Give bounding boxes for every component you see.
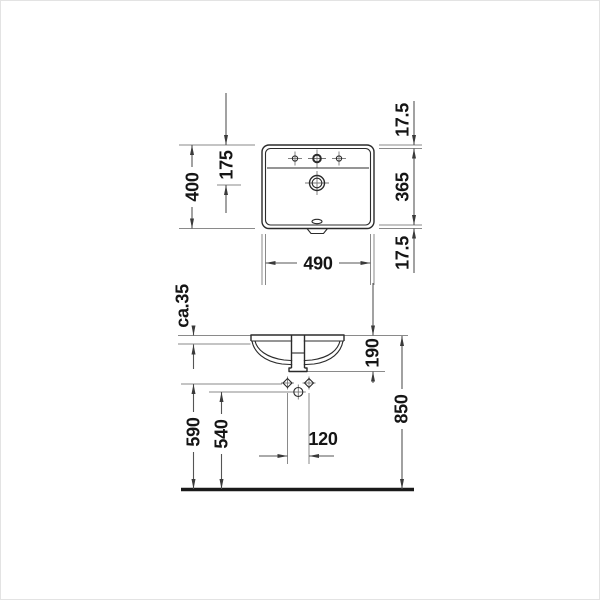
fixing-hole-left-icon [281,377,294,390]
tap-hole-right-icon [332,152,346,166]
top-view-dimensions: 400 175 17.5 365 17.5 490 [182,93,414,273]
top-view: 400 175 17.5 365 17.5 490 [179,93,422,285]
dim-outlet-depth-label: 190 [362,338,382,367]
supply-connection-icon [291,385,306,400]
drain-pipe [289,336,307,372]
dim-fixing-height-label: 590 [183,417,203,446]
tap-hole-left-icon [288,152,302,166]
drain-plan-icon [305,171,329,195]
fixing-hole-right-icon [303,377,316,390]
tap-hole-markers [288,150,346,168]
basin-front-profile [251,335,344,372]
overflow-slot [312,219,322,223]
overflow-notch [307,229,328,234]
washbasin-drawing: 400 175 17.5 365 17.5 490 [1,1,600,600]
dim-rim-height-label: 850 [391,394,411,423]
dim-supply-height-label: 540 [211,419,231,448]
dim-rim-front-label: 17.5 [392,236,412,270]
dim-width-label: 490 [303,253,332,273]
tap-hole-center-icon [308,150,326,168]
technical-drawing-canvas: 400 175 17.5 365 17.5 490 [0,0,600,600]
dim-depth-label: 400 [182,172,202,201]
side-view: ca.35 190 850 590 540 120 [172,283,414,490]
side-view-dimensions: ca.35 190 850 590 540 120 [172,283,411,489]
dim-drain-offset-label: 175 [216,150,236,179]
dim-supply-spacing-label: 120 [308,429,337,449]
dim-basin-inner-label: 365 [392,172,412,201]
dim-counter-thickness-label: ca.35 [172,284,192,328]
dim-rim-rear-label: 17.5 [392,103,412,137]
mounting-points [281,377,316,400]
